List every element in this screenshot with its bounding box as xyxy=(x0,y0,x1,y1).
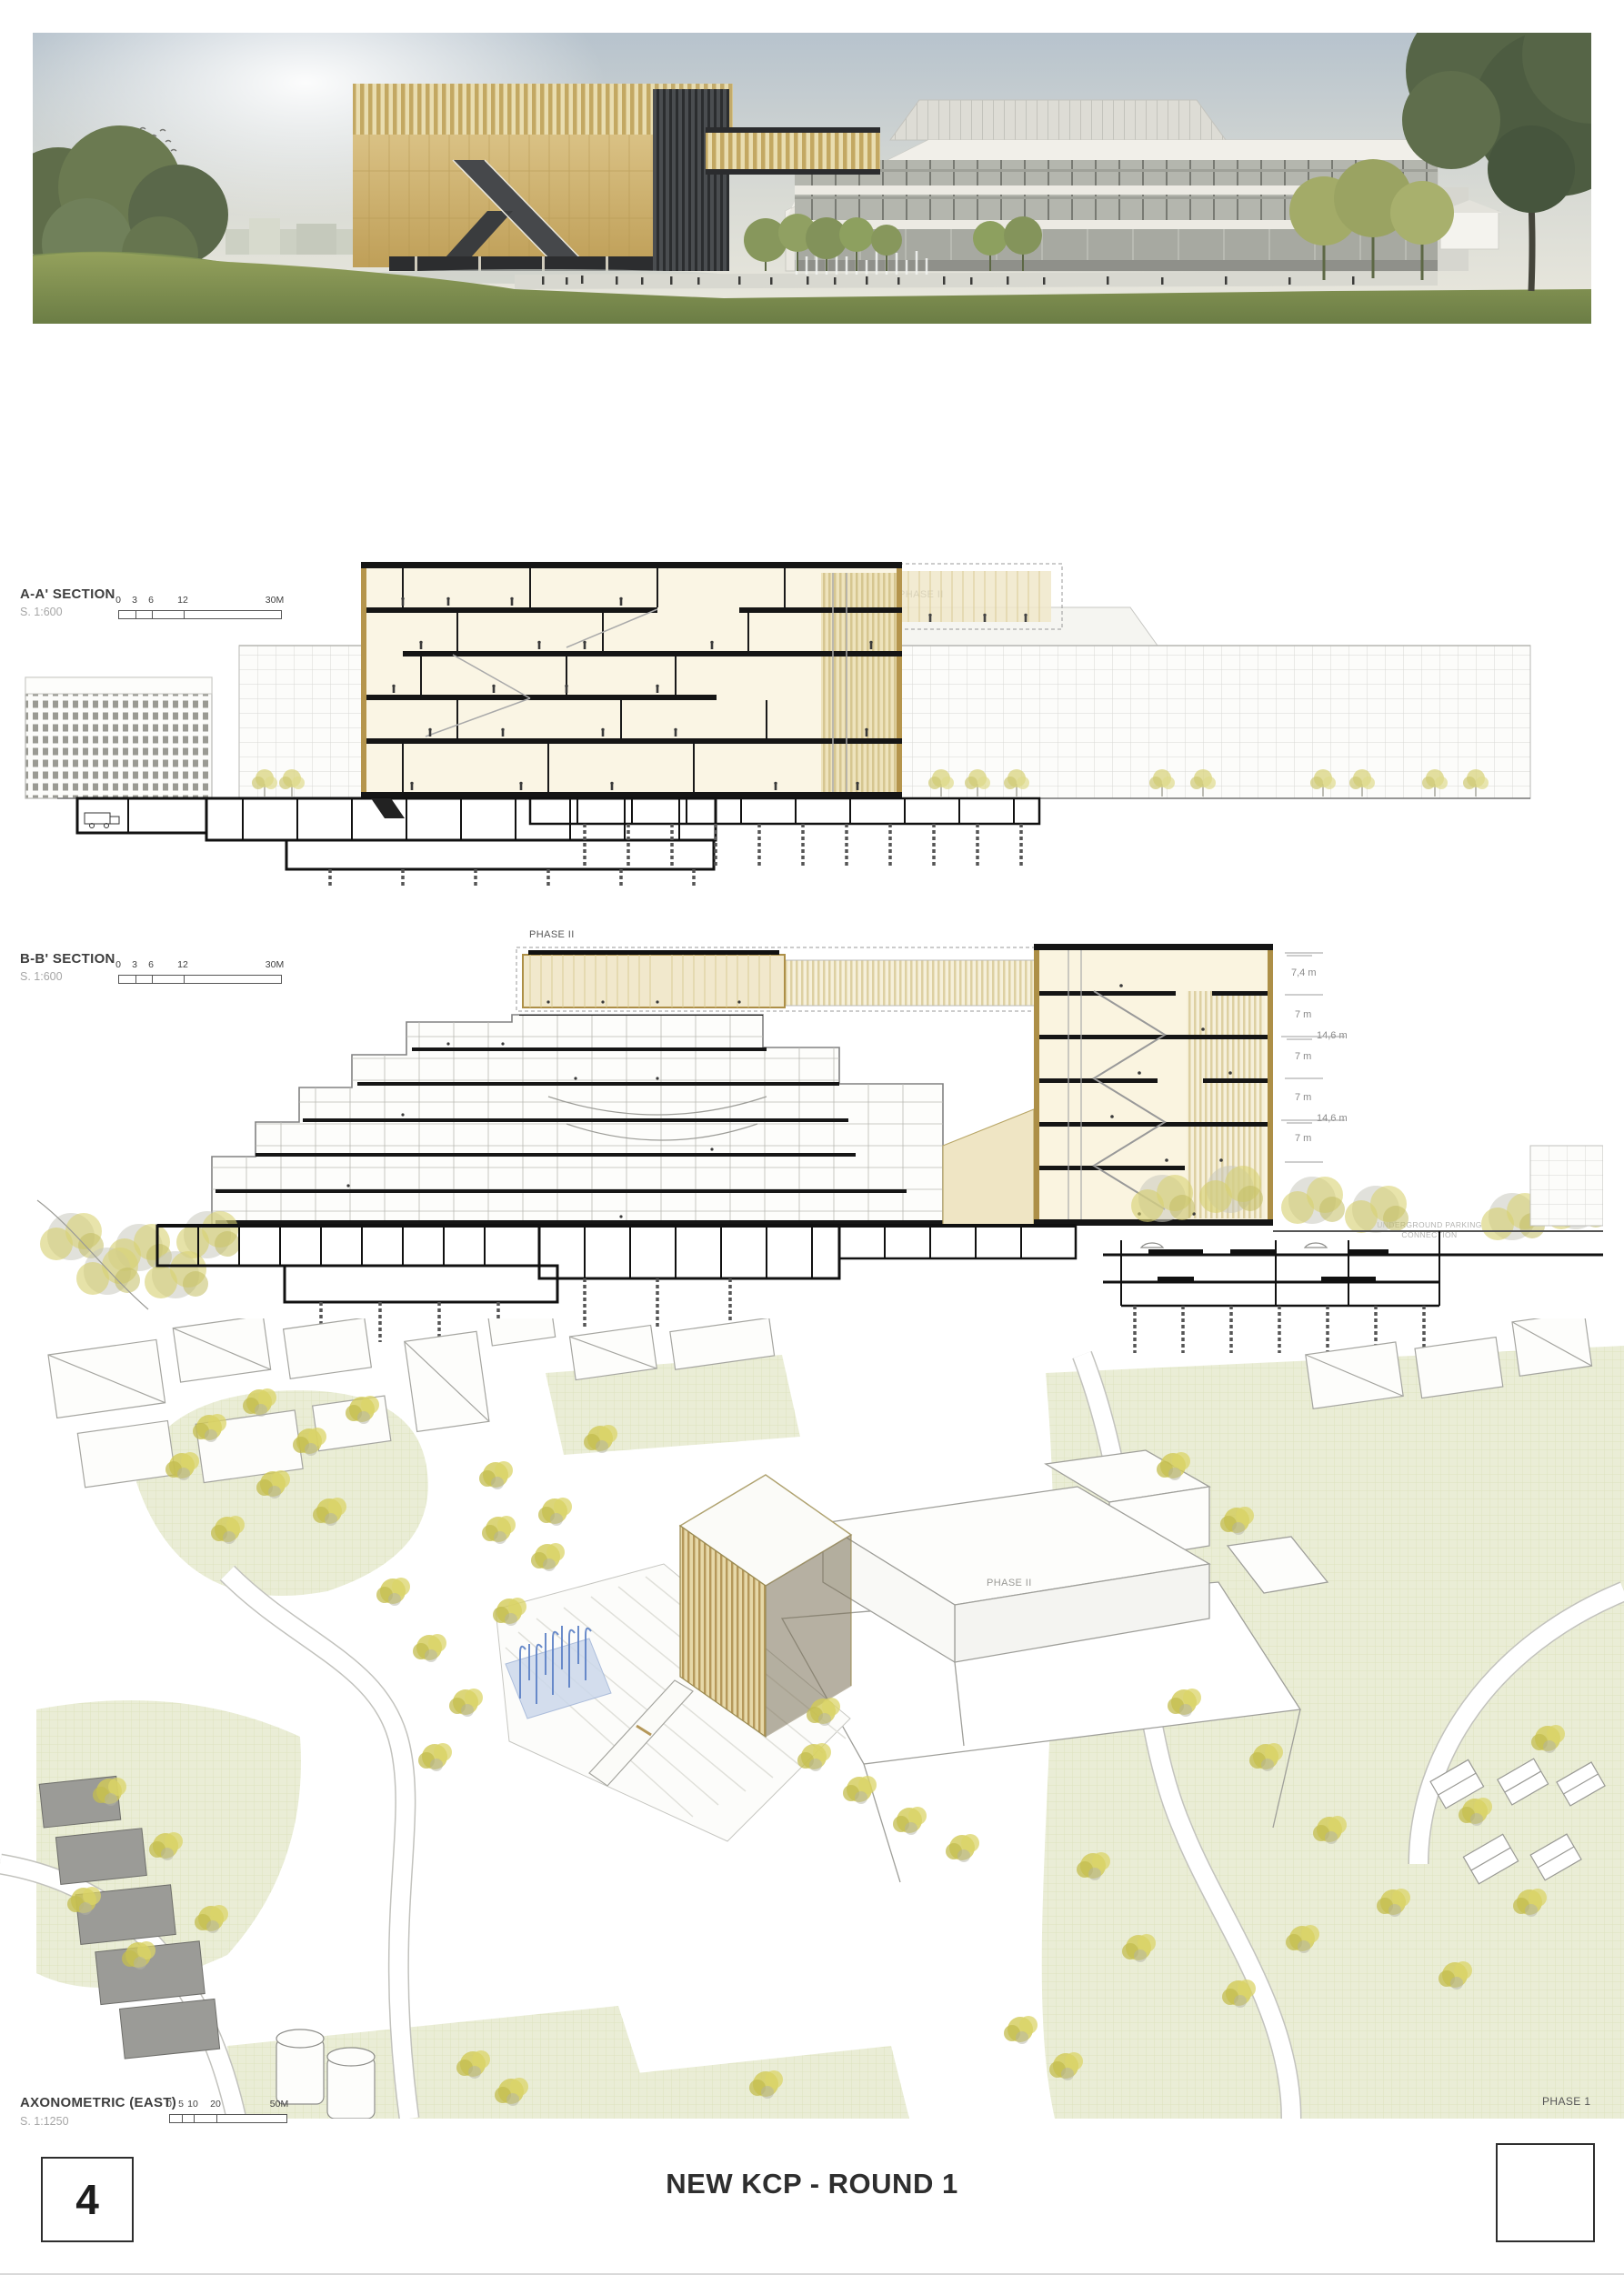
bb-cars xyxy=(1141,1243,1327,1248)
section-aa-svg xyxy=(21,509,1603,891)
bb-dim-ticks xyxy=(1281,953,1345,1162)
axonometric-drawing xyxy=(0,1318,1624,2119)
golden-cube xyxy=(351,84,733,284)
presentation-board: A-A' SECTION S. 1:600 0 3 6 12 30M PHASE… xyxy=(0,0,1624,2275)
corner-empty-box xyxy=(1496,2143,1595,2242)
axonometric-svg xyxy=(0,1318,1624,2119)
dark-louver-tower xyxy=(653,89,729,271)
aa-piles xyxy=(330,824,1021,886)
aa-cut-building xyxy=(361,562,902,798)
aa-hotel-block xyxy=(25,677,212,798)
page-number: 4 xyxy=(75,2175,99,2224)
page-number-box: 4 xyxy=(41,2157,134,2242)
axon-label: AXONOMETRIC (EAST) xyxy=(20,2095,176,2110)
hero-rendering xyxy=(33,33,1591,324)
aa-underground xyxy=(57,798,1530,886)
section-bb-svg xyxy=(21,927,1603,1355)
axon-scale: S. 1:1250 xyxy=(20,2115,69,2128)
board-title: NEW KCP - ROUND 1 xyxy=(0,2168,1624,2200)
section-bb-drawing xyxy=(21,927,1603,1355)
section-aa-drawing xyxy=(21,509,1603,891)
bb-right-building xyxy=(1530,1146,1603,1226)
link-bridge xyxy=(706,127,880,175)
bb-existing-hall xyxy=(212,1011,1034,1226)
axon-phase2-label: PHASE II xyxy=(987,1578,1032,1588)
aa-truck xyxy=(85,813,119,828)
hero-rendering-svg xyxy=(33,33,1591,324)
corner-phase-label: PHASE 1 xyxy=(1542,2095,1591,2108)
